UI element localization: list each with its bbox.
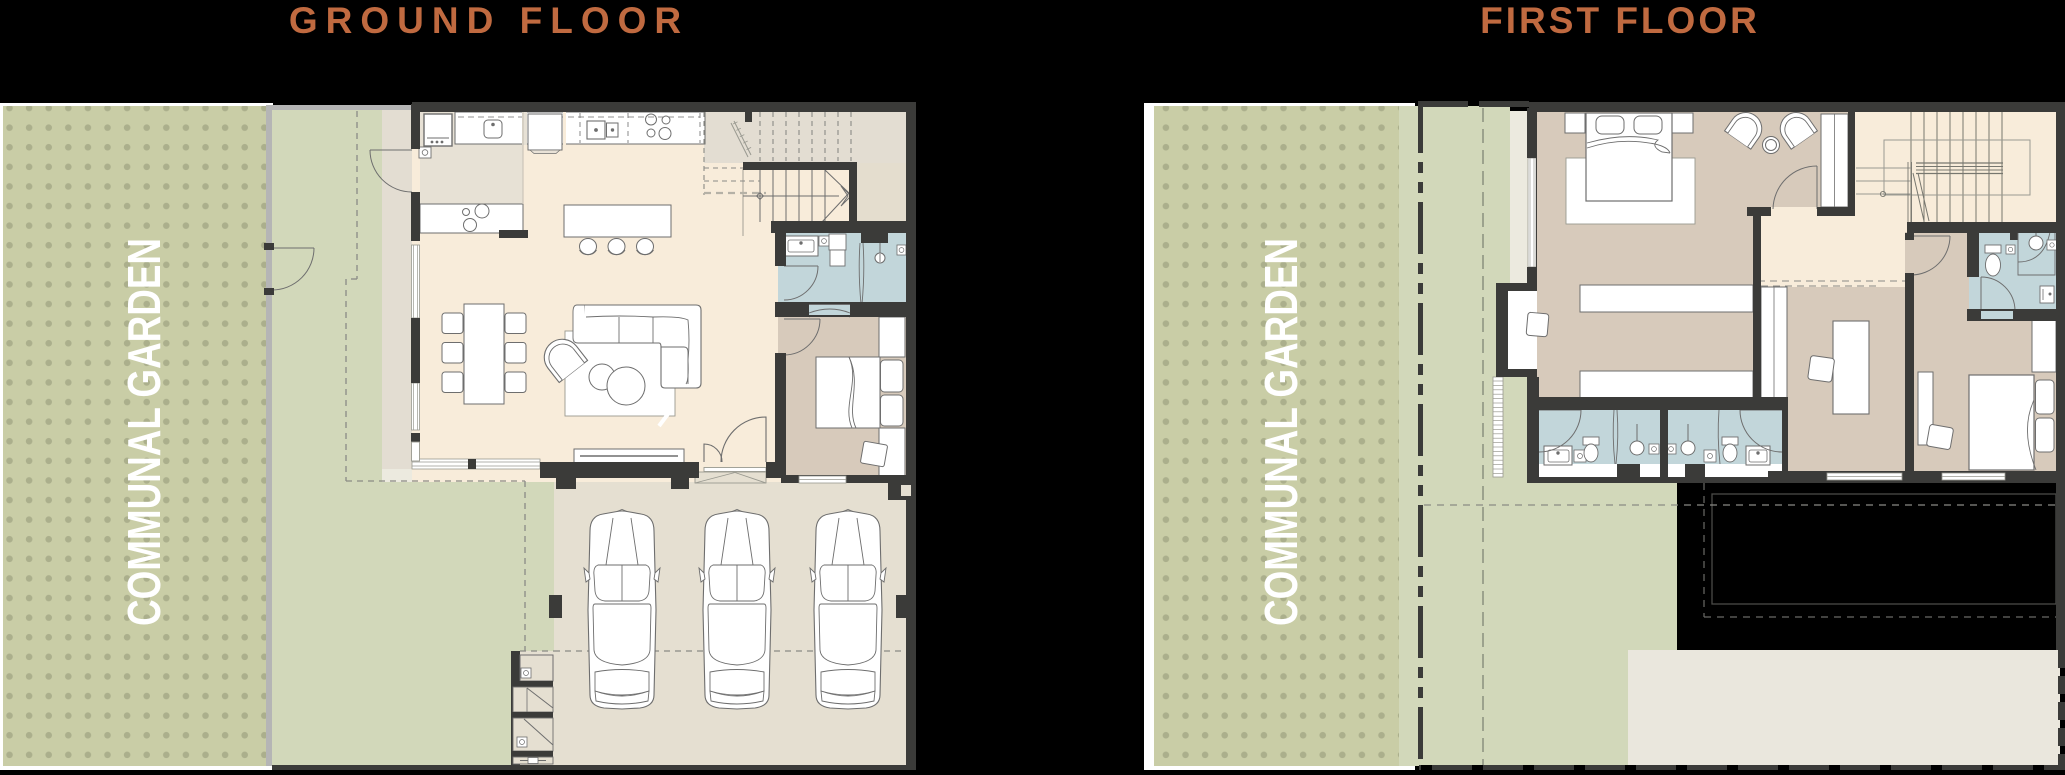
svg-text:COMMUNAL GARDEN: COMMUNAL GARDEN [118, 238, 170, 626]
svg-text:GROUND FLOOR: GROUND FLOOR [289, 0, 689, 41]
svg-text:FIRST FLOOR: FIRST FLOOR [1480, 0, 1760, 41]
svg-text:COMMUNAL GARDEN: COMMUNAL GARDEN [1255, 238, 1307, 626]
